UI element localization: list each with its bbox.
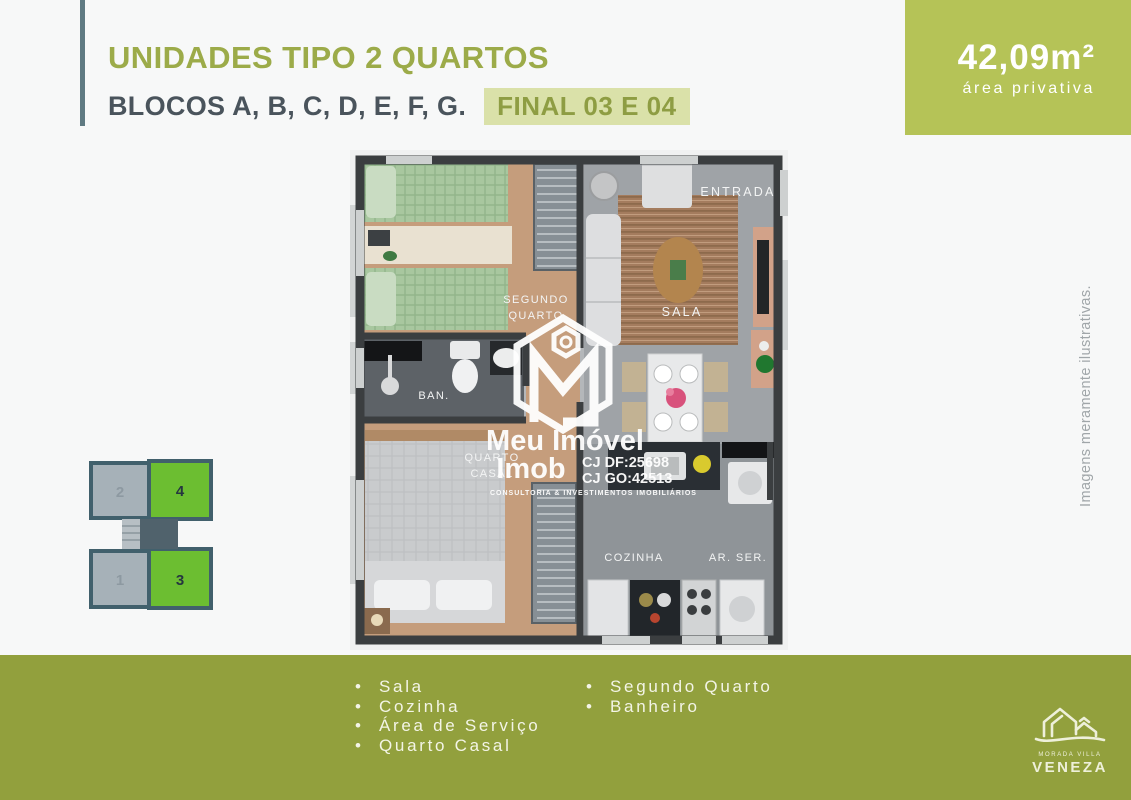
veneza-houses-icon (1022, 700, 1118, 746)
accent-bar (80, 0, 85, 126)
wardrobe (534, 164, 580, 270)
area-label: área privativa (905, 80, 1095, 98)
side-table (590, 172, 618, 200)
features-list-left: Sala Cozinha Área de Serviço Quarto Casa… (355, 677, 540, 755)
label-cozinha: COZINHA (604, 552, 663, 564)
feature-cozinha: Cozinha (355, 697, 540, 717)
private-area-box: 42,09m² área privativa (905, 0, 1131, 135)
label-area-servico: AR. SER. (709, 552, 767, 564)
fridge (588, 580, 628, 638)
final-units-badge: FINAL 03 E 04 (484, 88, 689, 125)
developer-name: VENEZA (1022, 759, 1118, 776)
label-banheiro: BAN. (418, 390, 449, 402)
block-key-diagram: 2 4 1 3 (86, 456, 216, 619)
marketing-sheet: UNIDADES TIPO 2 QUARTOS BLOCOS A, B, C, … (0, 0, 1131, 800)
page-title: UNIDADES TIPO 2 QUARTOS (108, 40, 690, 76)
developer-logo: MORADA VILLA VENEZA (1022, 700, 1118, 776)
pillow (436, 580, 492, 610)
counter-cooktop (630, 580, 680, 638)
core (140, 519, 178, 549)
chair (622, 362, 646, 392)
plant (756, 355, 774, 373)
unit-2-number: 2 (116, 484, 124, 501)
feature-banheiro: Banheiro (586, 697, 773, 717)
unit-3-number: 3 (176, 572, 184, 589)
watermark-brand-2: Imob (496, 453, 565, 485)
feature-segundo-quarto: Segundo Quarto (586, 677, 773, 697)
unit-4-number: 4 (176, 483, 185, 500)
pillow (374, 580, 430, 610)
features-list-right: Segundo Quarto Banheiro (586, 677, 773, 716)
label-segundo-quarto-1: SEGUNDO (503, 294, 568, 306)
sofa (586, 214, 621, 346)
feature-area-servico: Área de Serviço (355, 716, 540, 736)
shower-mat (364, 341, 422, 361)
feature-quarto-casal: Quarto Casal (355, 736, 540, 756)
chair (704, 402, 728, 432)
header: UNIDADES TIPO 2 QUARTOS BLOCOS A, B, C, … (108, 40, 690, 125)
wardrobe (532, 483, 576, 623)
area-value: 42,09m² (905, 38, 1095, 78)
stairs (122, 519, 140, 549)
watermark-tagline: CONSULTORIA & INVESTIMENTOS IMOBILIÁRIOS (490, 488, 697, 497)
yellow-flowers (693, 455, 711, 473)
headboard (365, 430, 505, 441)
toilet (450, 341, 480, 359)
pillow (366, 272, 396, 326)
pillow (366, 166, 396, 218)
armchair (642, 160, 692, 208)
unit-1-number: 1 (116, 572, 124, 589)
chair (704, 362, 728, 392)
tv (757, 240, 769, 314)
feature-sala: Sala (355, 677, 540, 697)
illustrative-images-note: Imagens meramente ilustrativas. (1078, 285, 1094, 507)
developer-tagline: MORADA VILLA (1022, 752, 1118, 758)
blocks-subtitle: BLOCOS A, B, C, D, E, F, G. (108, 91, 466, 122)
floor-plan-drawing: ENTRADA SEGUNDO QUARTO SALA BAN. QUARTO … (350, 150, 788, 650)
room-banheiro (362, 338, 524, 420)
floor-plan: ENTRADA SEGUNDO QUARTO SALA BAN. QUARTO … (350, 150, 788, 650)
stove (682, 580, 716, 638)
label-sala: SALA (662, 305, 703, 319)
watermark-reg-go: CJ GO:42513 (582, 471, 672, 487)
watermark-reg-df: CJ DF:25698 (582, 455, 669, 471)
footer-bar (0, 655, 1131, 800)
lamp (371, 614, 383, 626)
label-entrada: ENTRADA (700, 185, 775, 199)
